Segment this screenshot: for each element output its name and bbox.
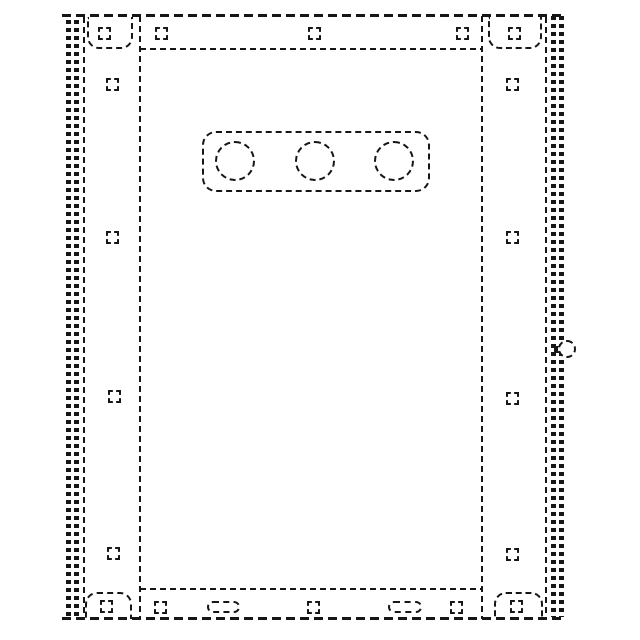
- fastener-square-top-rail-1: [155, 27, 168, 40]
- right-edge-hatch-inner: [551, 16, 556, 617]
- fastener-square-bracket-top-right: [508, 27, 521, 40]
- bottom-slot-oval-2: [388, 601, 422, 613]
- fastener-square-bracket-bottom-left: [100, 600, 113, 613]
- fastener-square-bracket-top-left: [98, 27, 111, 40]
- fastener-square-bottom-rail-2: [307, 601, 320, 614]
- fastener-square-right-column-3: [506, 392, 519, 405]
- fastener-square-bracket-bottom-right: [510, 600, 523, 613]
- left-edge-hatch-inner: [74, 20, 79, 617]
- right-column-boundary-line: [481, 16, 483, 619]
- fastener-square-top-rail-2: [308, 27, 321, 40]
- top-rail-line: [140, 48, 482, 50]
- left-edge-hatch-outer: [66, 20, 71, 617]
- fastener-square-right-column-4: [506, 548, 519, 561]
- right-edge-knob-icon: [558, 340, 576, 358]
- fastener-square-left-column-4: [107, 547, 120, 560]
- feature-circle-2: [295, 141, 335, 181]
- fastener-square-left-column-3: [108, 390, 121, 403]
- fastener-square-right-column-2: [506, 231, 519, 244]
- left-column-boundary-line: [139, 16, 141, 619]
- bottom-slot-oval-1: [207, 601, 240, 613]
- right-band-boundary-line: [545, 17, 547, 618]
- bottom-rail-line: [140, 588, 482, 590]
- fastener-square-bottom-rail-1: [154, 601, 167, 614]
- patent-drawing-canvas: [0, 0, 640, 640]
- feature-circle-1: [215, 141, 255, 181]
- right-edge-hatch-outer: [559, 16, 564, 617]
- feature-circle-3: [374, 141, 414, 181]
- left-band-boundary-line: [83, 17, 85, 618]
- fastener-square-bottom-rail-3: [450, 601, 463, 614]
- outer-top-edge: [62, 14, 562, 17]
- fastener-square-left-column-2: [106, 231, 119, 244]
- fastener-square-left-column-1: [106, 78, 119, 91]
- outer-bottom-edge: [62, 617, 562, 620]
- fastener-square-top-rail-3: [456, 27, 469, 40]
- fastener-square-right-column-1: [506, 78, 519, 91]
